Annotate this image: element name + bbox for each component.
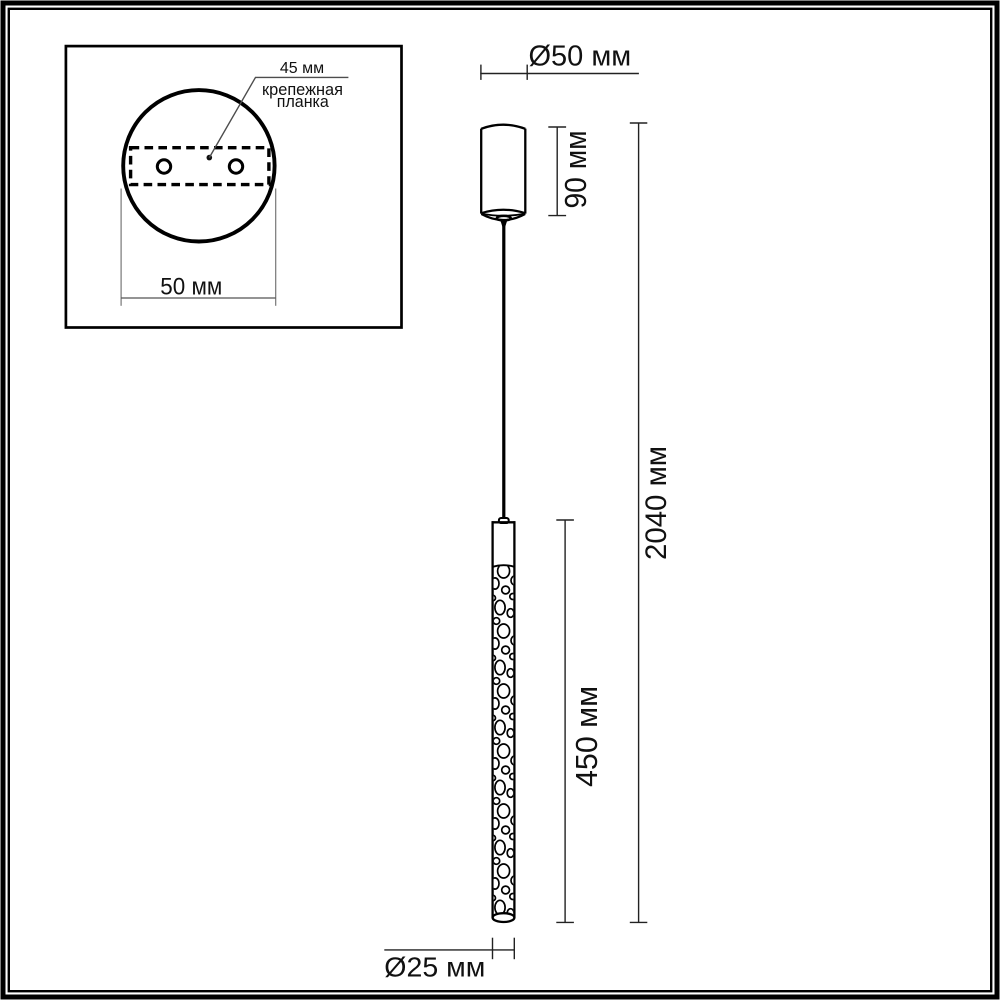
- svg-text:Ø50 мм: Ø50 мм: [529, 40, 632, 72]
- svg-text:450 мм: 450 мм: [569, 686, 604, 787]
- svg-text:50 мм: 50 мм: [160, 274, 222, 301]
- svg-text:планка: планка: [277, 92, 330, 111]
- svg-text:2040 мм: 2040 мм: [640, 446, 673, 560]
- svg-text:45 мм: 45 мм: [280, 60, 324, 77]
- svg-text:Ø25 мм: Ø25 мм: [384, 951, 485, 982]
- svg-text:90 мм: 90 мм: [558, 131, 593, 209]
